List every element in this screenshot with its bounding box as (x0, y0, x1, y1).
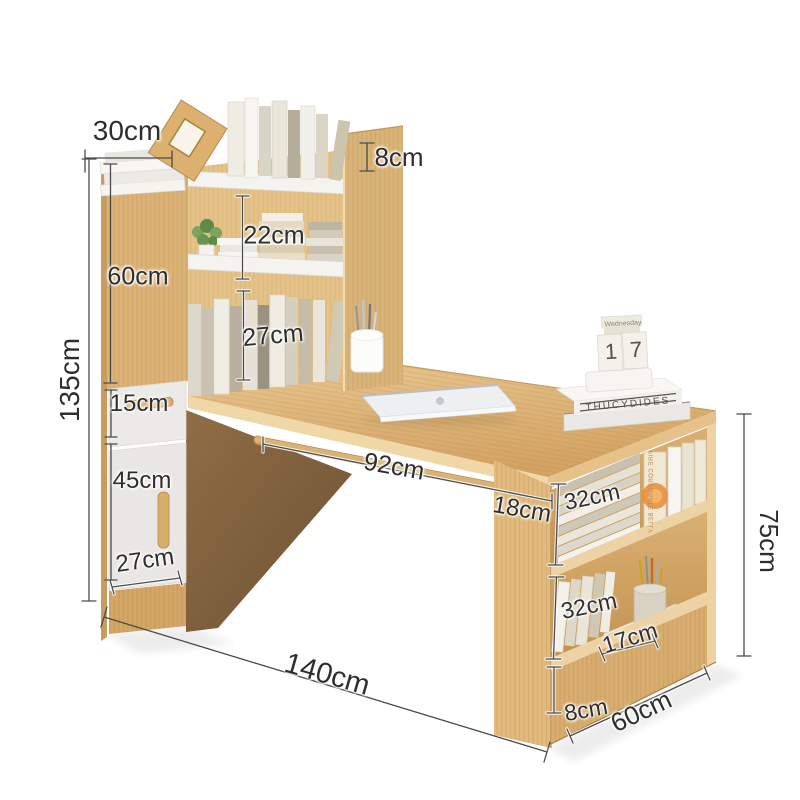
product-dimension-diagram: 30cm 8cm 22cm 60cm 27cm 135cm 15cm 45cm … (0, 0, 800, 800)
laptop-logo (436, 397, 444, 405)
dim-label-upper-shelf-height: 22cm (243, 224, 304, 249)
right-edge-panel (707, 423, 716, 667)
top-books (228, 98, 350, 181)
dim-label-total-height: 135cm (56, 338, 84, 422)
dim-label-upper-section-height: 60cm (107, 265, 168, 290)
dim-label-top-rim-height: 8cm (374, 144, 423, 170)
calendar-day-left: 1 (604, 341, 617, 364)
calendar-day-right: 7 (629, 339, 642, 362)
dim-label-drawer-height: 15cm (110, 392, 169, 416)
dim-label-door-height: 45cm (113, 469, 172, 493)
shelf-book-title: FIRE CORPORATE BELLY (649, 451, 655, 534)
door-handle (158, 492, 169, 548)
dim-label-right-case-height: 75cm (756, 509, 782, 573)
dim-label-lower-shelf-height: 27cm (241, 321, 304, 351)
dim-line-75cm (737, 414, 751, 656)
dim-label-top-depth: 30cm (93, 117, 161, 145)
